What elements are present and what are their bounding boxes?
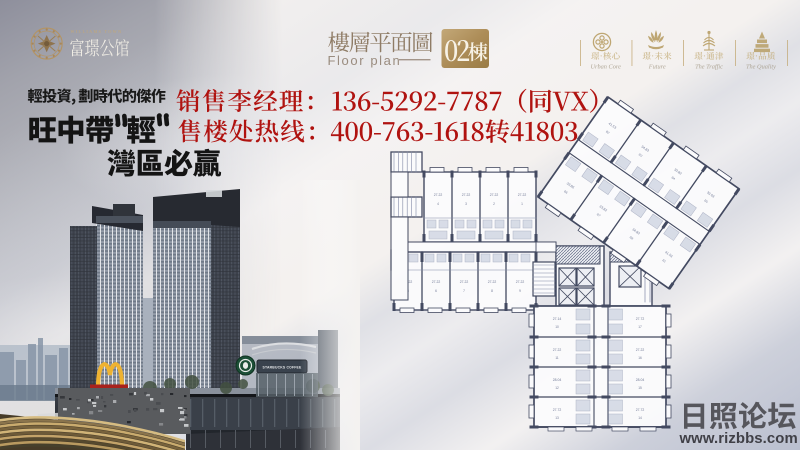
svg-text:1: 1 [521,202,523,206]
svg-text:27.22: 27.22 [490,193,499,197]
svg-text:12: 12 [555,386,559,390]
svg-text:27.72: 27.72 [553,408,562,412]
svg-text:27.22: 27.22 [553,348,562,352]
svg-text:27.22: 27.22 [488,280,497,284]
svg-text:27.14: 27.14 [553,317,562,321]
svg-text:16: 16 [638,356,642,360]
svg-text:2: 2 [493,202,495,206]
svg-text:10: 10 [555,325,559,329]
svg-text:27.22: 27.22 [432,280,441,284]
svg-text:11: 11 [555,356,559,360]
svg-text:9: 9 [519,289,521,293]
svg-text:27.22: 27.22 [434,193,443,197]
svg-text:28.04: 28.04 [553,378,562,382]
svg-text:14: 14 [638,416,642,420]
svg-text:3: 3 [465,202,467,206]
svg-text:The Traffic: The Traffic [695,64,723,71]
svg-text:27.22: 27.22 [636,348,645,352]
svg-text:8: 8 [491,289,493,293]
svg-text:27.72: 27.72 [636,408,645,412]
svg-text:4: 4 [437,202,439,206]
svg-text:Floor plan: Floor plan [328,53,402,68]
svg-text:27.22: 27.22 [460,280,469,284]
svg-text:27.22: 27.22 [518,193,527,197]
svg-text:27.72: 27.72 [636,317,645,321]
svg-text:27.22: 27.22 [462,193,471,197]
svg-text:WILLIAMS TOWN: WILLIAMS TOWN [71,29,123,34]
svg-text:17: 17 [638,325,642,329]
svg-text:15: 15 [638,386,642,390]
svg-text:27.22: 27.22 [516,280,525,284]
svg-text:Urban Core: Urban Core [591,64,622,71]
svg-text:The Quality: The Quality [746,64,776,71]
svg-text:STARBUCKS COFFEE: STARBUCKS COFFEE [263,366,302,370]
svg-text:Future: Future [648,64,666,71]
svg-text:www.rizbbs.com: www.rizbbs.com [679,431,798,447]
svg-text:13: 13 [555,416,559,420]
svg-text:6: 6 [435,289,437,293]
svg-text:7: 7 [463,289,465,293]
svg-text:28.04: 28.04 [636,378,645,382]
